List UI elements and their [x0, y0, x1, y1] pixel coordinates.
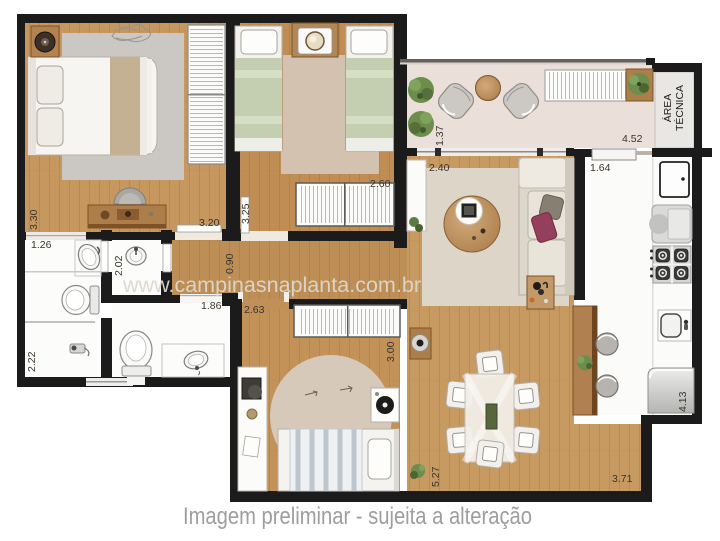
svg-text:5.27: 5.27	[430, 466, 442, 487]
svg-text:3.71: 3.71	[612, 473, 633, 485]
svg-text:1.26: 1.26	[31, 239, 52, 251]
svg-text:ÁREA: ÁREA	[661, 94, 674, 123]
svg-text:2.60: 2.60	[370, 178, 391, 190]
svg-text:3.00: 3.00	[385, 341, 397, 362]
svg-text:0.90: 0.90	[224, 253, 236, 274]
svg-text:3.20: 3.20	[199, 217, 220, 229]
svg-text:4.13: 4.13	[677, 391, 689, 412]
svg-text:1.86: 1.86	[201, 300, 222, 312]
svg-text:1.37: 1.37	[434, 125, 446, 146]
svg-text:4.52: 4.52	[622, 133, 643, 145]
svg-text:www.campinasnaplanta.com.br: www.campinasnaplanta.com.br	[122, 273, 421, 297]
svg-text:2.40: 2.40	[429, 162, 450, 174]
svg-text:3.30: 3.30	[28, 209, 40, 230]
svg-text:2.63: 2.63	[244, 304, 265, 316]
svg-text:2.22: 2.22	[26, 351, 38, 372]
svg-text:TÉCNICA: TÉCNICA	[673, 85, 686, 131]
svg-text:3.25: 3.25	[240, 203, 252, 224]
svg-text:Imagem preliminar - sujeita a: Imagem preliminar - sujeita a alteração	[183, 503, 532, 530]
svg-text:1.64: 1.64	[590, 162, 611, 174]
